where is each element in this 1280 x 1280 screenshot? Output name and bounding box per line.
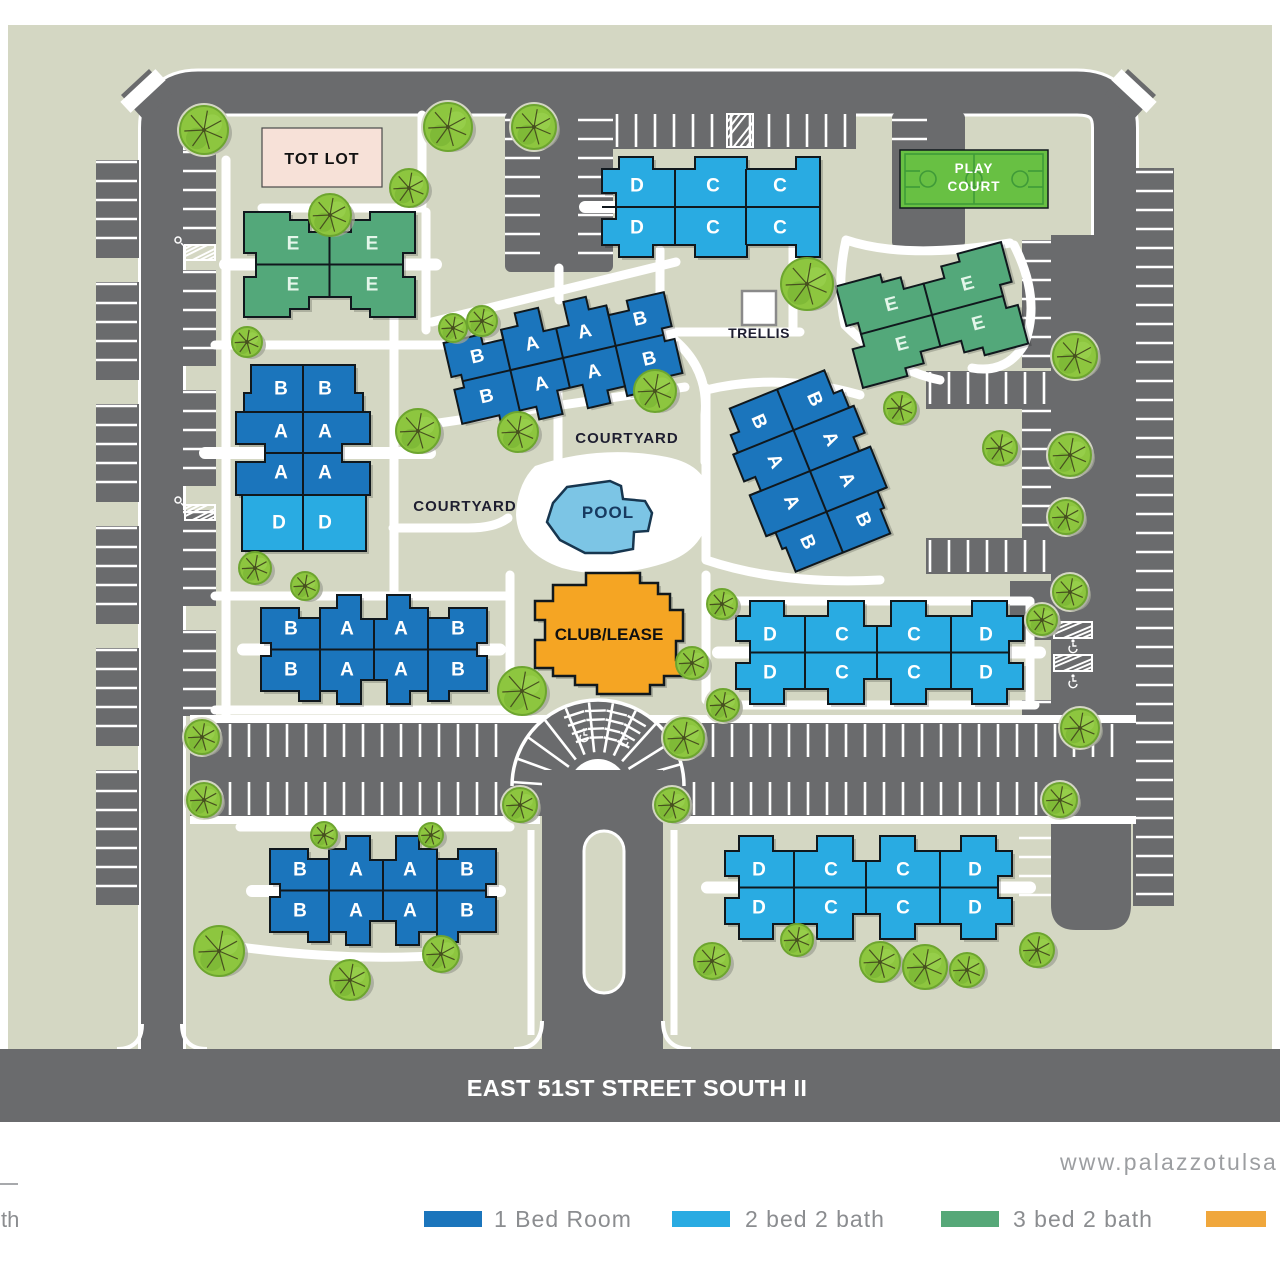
svg-text:C: C <box>824 898 838 919</box>
svg-text:D: D <box>979 625 993 646</box>
svg-text:C: C <box>907 663 921 684</box>
svg-text:A: A <box>403 901 417 922</box>
svg-text:COURTYARD: COURTYARD <box>413 498 516 515</box>
svg-text:D: D <box>968 860 982 881</box>
svg-text:E: E <box>366 275 379 296</box>
svg-text:C: C <box>896 860 910 881</box>
svg-text:C: C <box>896 898 910 919</box>
svg-text:3 bed 2 bath: 3 bed 2 bath <box>1013 1206 1153 1232</box>
svg-text:B: B <box>460 901 474 922</box>
svg-text:A: A <box>318 422 332 443</box>
svg-text:A: A <box>340 660 354 681</box>
svg-text:D: D <box>763 663 777 684</box>
svg-text:E: E <box>366 234 379 255</box>
svg-text:CLUB/LEASE: CLUB/LEASE <box>555 625 664 644</box>
svg-text:B: B <box>284 619 298 640</box>
svg-text:TRELLIS: TRELLIS <box>728 325 790 341</box>
svg-text:PLAY: PLAY <box>955 161 994 176</box>
svg-text:1 Bed Room: 1 Bed Room <box>494 1206 632 1232</box>
svg-text:D: D <box>752 860 766 881</box>
svg-text:B: B <box>274 379 288 400</box>
svg-text:D: D <box>752 898 766 919</box>
svg-text:D: D <box>968 898 982 919</box>
svg-text:D: D <box>979 663 993 684</box>
svg-text:B: B <box>293 901 307 922</box>
svg-text:A: A <box>394 660 408 681</box>
svg-text:D: D <box>272 513 286 534</box>
svg-text:C: C <box>706 176 720 197</box>
svg-text:A: A <box>403 860 417 881</box>
svg-text:COURT: COURT <box>948 179 1001 194</box>
svg-text:TOT LOT: TOT LOT <box>284 151 359 168</box>
svg-text:A: A <box>318 463 332 484</box>
svg-text:A: A <box>274 422 288 443</box>
svg-text:C: C <box>706 218 720 239</box>
svg-text:EAST 51ST STREET SOUTH II: EAST 51ST STREET SOUTH II <box>467 1075 807 1101</box>
svg-text:th: th <box>1 1207 19 1232</box>
svg-text:www.palazzotulsa.com: www.palazzotulsa.com <box>1059 1149 1280 1175</box>
svg-text:C: C <box>824 860 838 881</box>
svg-text:C: C <box>835 663 849 684</box>
svg-text:E: E <box>287 234 300 255</box>
svg-text:COURTYARD: COURTYARD <box>575 430 678 447</box>
svg-text:D: D <box>630 176 644 197</box>
svg-text:E: E <box>287 275 300 296</box>
svg-text:POOL: POOL <box>582 503 634 522</box>
svg-text:D: D <box>318 513 332 534</box>
svg-text:A: A <box>349 860 363 881</box>
svg-text:A: A <box>394 619 408 640</box>
svg-text:B: B <box>284 660 298 681</box>
svg-text:A: A <box>349 901 363 922</box>
svg-text:2 bed 2 bath: 2 bed 2 bath <box>745 1206 885 1232</box>
svg-text:B: B <box>293 860 307 881</box>
svg-text:D: D <box>630 218 644 239</box>
svg-text:C: C <box>773 218 787 239</box>
svg-text:B: B <box>451 660 465 681</box>
svg-text:C: C <box>907 625 921 646</box>
svg-text:D: D <box>763 625 777 646</box>
svg-text:C: C <box>835 625 849 646</box>
svg-text:B: B <box>460 860 474 881</box>
svg-text:A: A <box>340 619 354 640</box>
svg-text:B: B <box>451 619 465 640</box>
svg-text:C: C <box>773 176 787 197</box>
svg-text:A: A <box>274 463 288 484</box>
svg-text:B: B <box>318 379 332 400</box>
